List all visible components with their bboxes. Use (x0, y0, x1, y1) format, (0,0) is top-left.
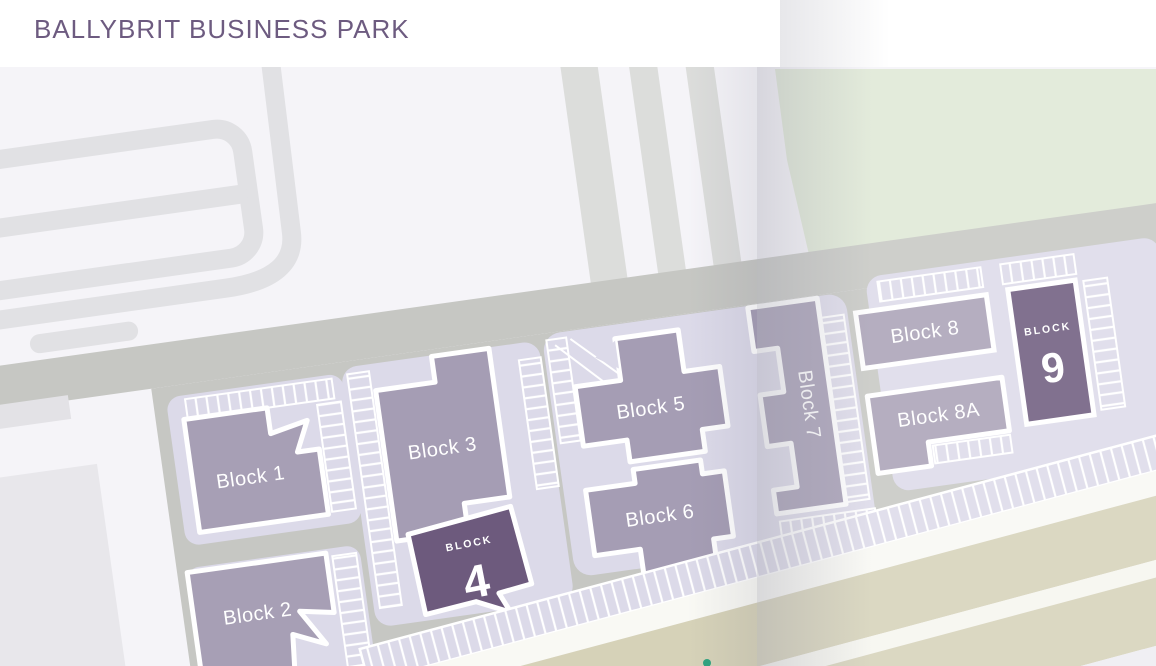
brochure-page: Block 1 Block 2 Block 3 BLOCK 4 Block 5 (0, 0, 1156, 666)
park-map: Block 1 Block 2 Block 3 BLOCK 4 Block 5 (0, 0, 1156, 666)
block-1: Block 1 (184, 401, 329, 532)
header-fold-shadow (780, 0, 890, 67)
road-stub (39, 331, 128, 344)
page-fold (757, 0, 872, 666)
page-title: BALLYBRIT BUSINESS PARK (34, 14, 410, 44)
page-fold-shadow-left (688, 0, 757, 666)
